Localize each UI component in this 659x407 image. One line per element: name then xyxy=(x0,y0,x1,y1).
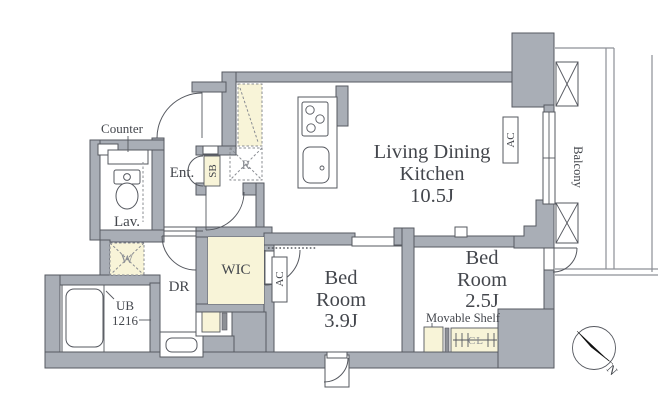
unit-bath-size: 1216 xyxy=(112,313,139,328)
ldk-size: 10.5J xyxy=(410,185,454,207)
entrance-label: Ent. xyxy=(170,165,195,181)
shoe-box-label: SB xyxy=(207,164,219,177)
movable-shelf xyxy=(424,323,443,352)
bedroom-b-label-line2: Room xyxy=(457,269,507,291)
ac-unit-bedroom-a-label: AC xyxy=(274,271,286,286)
sink xyxy=(303,147,329,183)
floor-plan: Balcony xyxy=(0,0,659,407)
lavatory-label: Lav. xyxy=(114,214,140,230)
wall-bath-top xyxy=(45,275,160,285)
compass-north-label: N xyxy=(604,362,620,378)
ldk-label-line2: Kitchen xyxy=(400,163,465,185)
wall-bedroom-a-top xyxy=(264,233,355,245)
wall-right-lower xyxy=(544,270,554,312)
bedroom-b-size: 2.5J xyxy=(465,290,499,312)
ldk-label-line1: Living Dining xyxy=(374,141,491,163)
bedroom-a-label-line2: Room xyxy=(316,289,366,311)
toilet xyxy=(114,170,140,209)
floor-plan-drawing: Balcony xyxy=(0,0,659,407)
compass: N xyxy=(573,327,621,379)
balcony: Balcony xyxy=(555,48,658,275)
wall-hall-vertical xyxy=(256,183,264,229)
closet-divider xyxy=(445,328,449,352)
ac-unit-ldk-label: AC xyxy=(505,132,517,147)
wall-bottom xyxy=(45,352,553,368)
toilet-counter xyxy=(108,150,148,164)
wall-pillar-top-right xyxy=(512,33,554,107)
ac-unit-bedroom-a: AC xyxy=(272,257,287,302)
unit-bath-label: UB xyxy=(116,298,134,313)
wall-nook-fill-right xyxy=(232,312,266,352)
bathtub xyxy=(66,289,103,347)
dr-nook-shelf xyxy=(202,312,220,332)
counter-label: Counter xyxy=(101,121,144,136)
dr-nook-panel xyxy=(222,313,227,330)
bedroom-a-window-bump xyxy=(324,352,349,387)
shoe-box-upper xyxy=(203,146,218,154)
ac-unit-ldk: AC xyxy=(503,117,518,163)
refrigerator-label: R xyxy=(242,157,251,172)
balcony-equipment-box-top xyxy=(556,62,578,106)
wall-corner-mass xyxy=(498,309,554,368)
wall-ent-top xyxy=(192,82,226,92)
wall-wic-bottom xyxy=(196,304,272,312)
balcony-label: Balcony xyxy=(571,146,585,188)
bedroom-b-label-line1: Bed xyxy=(465,247,498,269)
kitchen-upper-cabinet xyxy=(238,84,262,146)
wall-wic-top xyxy=(196,227,272,237)
dressing-room-label: DR xyxy=(169,279,190,295)
wall-bedroom-b-notch xyxy=(455,227,467,237)
kitchen-counter xyxy=(298,97,337,188)
wall-bedroom-divider-notch xyxy=(394,228,402,245)
entrance-door xyxy=(157,92,202,138)
ldk-sliding-window xyxy=(543,112,555,204)
balcony-equipment-box-bottom xyxy=(556,203,578,243)
wall-ent-left xyxy=(152,138,164,232)
closet-label: CL xyxy=(468,335,484,347)
bedroom-a-size: 3.9J xyxy=(324,310,358,332)
hall-door xyxy=(206,192,244,230)
washer-label: W xyxy=(121,251,134,266)
wall-right-step-chunk xyxy=(514,200,554,248)
dressing-room-door xyxy=(162,236,196,270)
bedroom-a-label-line1: Bed xyxy=(324,267,357,289)
wall-ub-right xyxy=(150,283,160,352)
wic-label: WIC xyxy=(221,262,250,278)
wall-kitchen-stub xyxy=(336,86,348,126)
wall-ldk-top xyxy=(222,72,517,82)
movable-shelf-label: Movable Shelf xyxy=(426,311,501,325)
wall-dr-wic xyxy=(196,237,208,312)
wall-bedroom-divider xyxy=(402,228,414,352)
compass-needle xyxy=(577,331,609,361)
